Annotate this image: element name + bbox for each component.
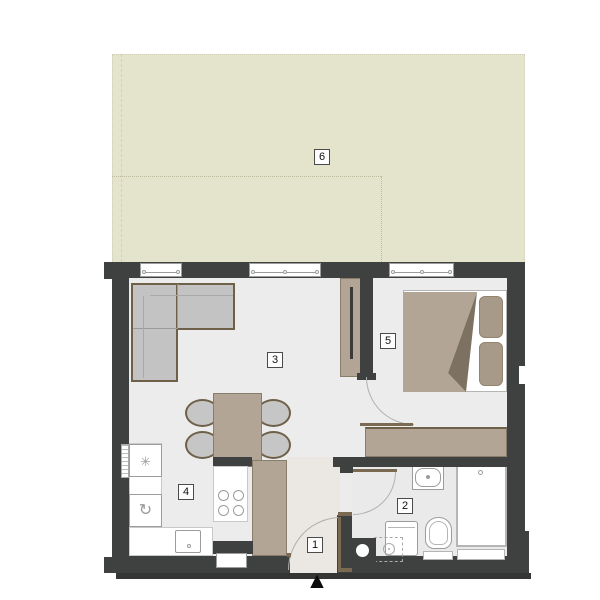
room-label-living-room: 3 bbox=[267, 352, 283, 368]
dining-table bbox=[213, 393, 262, 467]
room-label-bedroom: 5 bbox=[380, 333, 396, 349]
bath-mat bbox=[457, 549, 505, 560]
wall-niche-box bbox=[216, 553, 247, 568]
wall-notch-bottom-left bbox=[104, 557, 112, 573]
pipe-icon bbox=[356, 544, 369, 557]
burner-icon bbox=[233, 490, 244, 501]
window-joint-icon bbox=[448, 270, 452, 274]
tv-screen bbox=[350, 287, 353, 359]
wall-exterior-bottom-left bbox=[112, 556, 290, 573]
terrace-divider-vertical bbox=[381, 176, 382, 262]
wall-living-bedroom bbox=[360, 262, 373, 377]
room-label-hallway: 1 bbox=[307, 537, 323, 553]
toilet-mat bbox=[423, 551, 453, 560]
sofa-cushion-divider bbox=[133, 328, 177, 329]
stove-counter bbox=[213, 466, 248, 522]
washer-lid-line bbox=[388, 527, 415, 528]
shower-tub bbox=[456, 465, 507, 547]
sofa-cushion-divider bbox=[177, 284, 178, 329]
wall-exterior-right bbox=[507, 262, 525, 573]
door-jamb-mark bbox=[338, 568, 352, 572]
burner-icon bbox=[233, 505, 244, 516]
window-frame-line bbox=[143, 272, 179, 273]
sofa-backrest-line bbox=[143, 296, 144, 378]
sofa-section-vertical bbox=[131, 283, 178, 382]
drain-icon bbox=[478, 470, 483, 475]
window bbox=[389, 263, 454, 277]
door-jamb-mark bbox=[338, 512, 352, 516]
window-joint-icon bbox=[420, 270, 424, 274]
pillow bbox=[479, 296, 503, 338]
sofa-backrest-line bbox=[150, 295, 233, 296]
drain-icon bbox=[426, 475, 430, 479]
hallway-cabinet bbox=[252, 460, 287, 556]
room-label-kitchen: 4 bbox=[178, 484, 194, 500]
kitchen-sink bbox=[175, 530, 201, 553]
bathroom-sink bbox=[412, 465, 444, 490]
toilet bbox=[425, 517, 452, 549]
window-joint-icon bbox=[283, 270, 287, 274]
terrace-divider-horizontal bbox=[112, 176, 381, 177]
toilet-bowl bbox=[429, 521, 448, 545]
appliance-outline-dashed bbox=[374, 537, 403, 562]
window bbox=[140, 263, 182, 277]
bedroom-door-leaf bbox=[360, 423, 413, 426]
installation-shaft bbox=[350, 538, 376, 564]
burner-icon bbox=[218, 490, 229, 501]
room-label-terrace: 6 bbox=[314, 149, 330, 165]
bathroom-door-leaf bbox=[353, 469, 397, 472]
terrace-boundary-dashed-line bbox=[121, 54, 122, 262]
entrance-door-leaf bbox=[338, 517, 341, 570]
window bbox=[249, 263, 321, 277]
drain-icon bbox=[187, 544, 191, 548]
wall-bathroom-top bbox=[333, 457, 508, 467]
window-joint-icon bbox=[391, 270, 395, 274]
window-joint-icon bbox=[251, 270, 255, 274]
floor-plan-canvas: ✳ ↻ bbox=[0, 0, 600, 600]
dishwasher-icon: ↻ bbox=[129, 494, 162, 527]
wall-recess-right bbox=[519, 366, 528, 384]
wall-bathroom-door-jamb bbox=[340, 466, 353, 473]
wall-kitchen-stub-top bbox=[213, 457, 252, 466]
appliance-dial-dot bbox=[388, 548, 390, 550]
window-joint-icon bbox=[315, 270, 319, 274]
entrance-arrow-icon: ▲ bbox=[303, 567, 331, 593]
pillow bbox=[479, 342, 503, 386]
window-joint-icon bbox=[176, 270, 180, 274]
bedroom-wardrobe bbox=[365, 427, 507, 457]
radiator-hatch bbox=[121, 444, 129, 478]
wall-step-right bbox=[524, 531, 529, 573]
door-jamb-mark bbox=[287, 553, 291, 557]
wall-exterior-left bbox=[112, 262, 129, 573]
room-label-bathroom: 2 bbox=[397, 498, 413, 514]
burner-icon bbox=[218, 505, 229, 516]
fridge-freezer-icon: ✳ bbox=[129, 444, 162, 477]
window-joint-icon bbox=[142, 270, 146, 274]
wall-notch-top-left bbox=[104, 262, 112, 279]
